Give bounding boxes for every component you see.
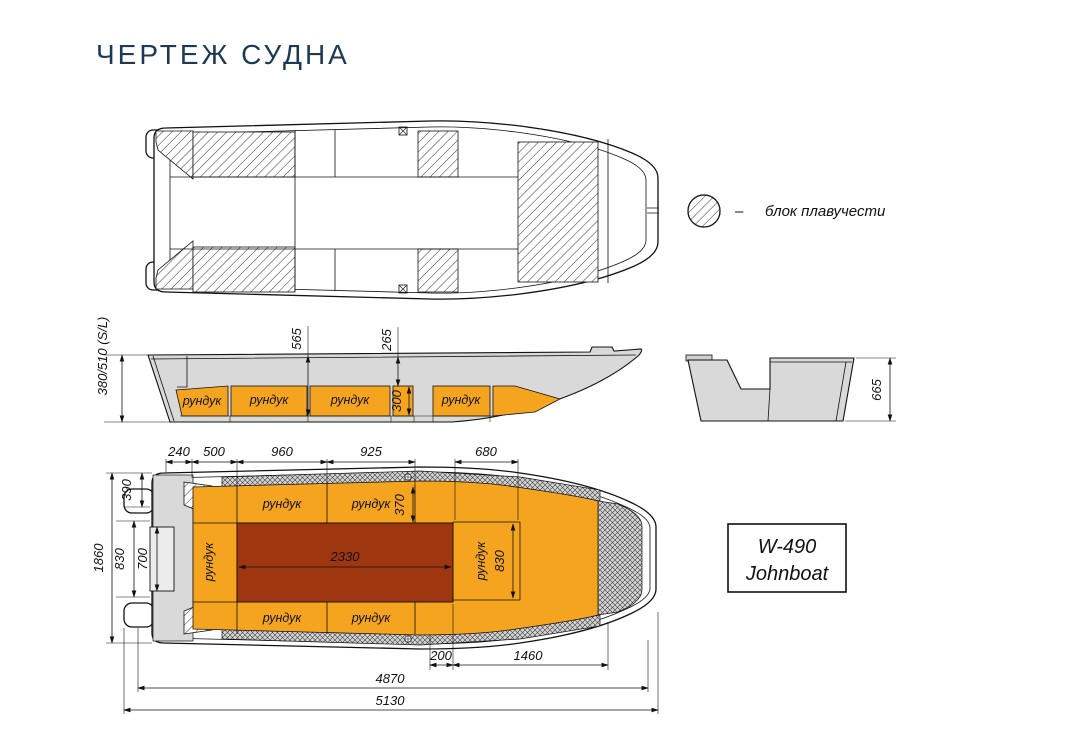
dim-1460: 1460 <box>514 648 544 663</box>
page-title: ЧЕРТЕЖ СУДНА <box>96 39 350 70</box>
dim-390: 390 <box>119 478 134 500</box>
buoyancy-block-icon-hatch <box>688 195 720 227</box>
dim-830-left: 830 <box>112 547 127 569</box>
model-box: W-490 Johnboat <box>728 524 846 592</box>
locker-label: рундук <box>262 497 303 511</box>
dim-680: 680 <box>475 444 497 459</box>
ship-drawing-page: ЧЕРТЕЖ СУДНА <box>0 0 1069 752</box>
buoyancy-block <box>418 249 458 292</box>
dim-2330: 2330 <box>330 549 361 564</box>
buoyancy-block <box>193 247 295 292</box>
dim-500: 500 <box>203 444 225 459</box>
locker-label: рундук <box>249 393 290 407</box>
legend-separator: – <box>734 203 744 220</box>
locker-label: рундук <box>441 393 482 407</box>
dim-960: 960 <box>271 444 293 459</box>
model-type: Johnboat <box>745 563 830 585</box>
dim-5130: 5130 <box>376 693 406 708</box>
dim-4870: 4870 <box>376 671 406 686</box>
dim-830-right: 830 <box>492 549 507 571</box>
cross-section-view: 665 <box>686 355 896 421</box>
motor-well-notch <box>150 527 174 591</box>
buoyancy-block-bow <box>518 142 598 282</box>
buoyancy-block <box>193 132 295 177</box>
legend: – блок плавучести <box>688 195 886 227</box>
legend-label: блок плавучести <box>765 203 886 220</box>
side-view: рундук рундук рундук рундук 380/510 (S/L… <box>95 317 642 422</box>
locker-label: рундук <box>202 542 216 583</box>
deck-view: рундук рундук рундук рундук рундук рунду… <box>91 444 658 714</box>
dim-265: 265 <box>379 328 394 351</box>
dim-565: 565 <box>289 327 304 349</box>
locker-label: рундук <box>182 394 223 408</box>
dim-1860: 1860 <box>91 543 106 573</box>
transom-section-shape <box>688 358 854 421</box>
dim-700: 700 <box>135 547 150 569</box>
top-view <box>146 121 659 299</box>
dim-300: 300 <box>389 389 404 411</box>
dim-200: 200 <box>429 648 452 663</box>
transom-handle-bottom <box>124 603 154 627</box>
dim-665: 665 <box>869 378 884 400</box>
buoyancy-block <box>418 131 458 177</box>
dim-240: 240 <box>167 444 190 459</box>
locker-label: рундук <box>262 611 303 625</box>
dim-depth-overall: 380/510 (S/L) <box>95 317 110 396</box>
foam-band-bow <box>598 501 642 615</box>
locker-label: рундук <box>351 497 392 511</box>
locker-label: рундук <box>330 393 371 407</box>
model-name: W-490 <box>758 536 817 558</box>
dim-925: 925 <box>360 444 382 459</box>
dim-370: 370 <box>392 493 407 515</box>
ship-drawing: ЧЕРТЕЖ СУДНА <box>0 0 1069 752</box>
locker-label: рундук <box>474 541 488 582</box>
locker-label: рундук <box>351 611 392 625</box>
